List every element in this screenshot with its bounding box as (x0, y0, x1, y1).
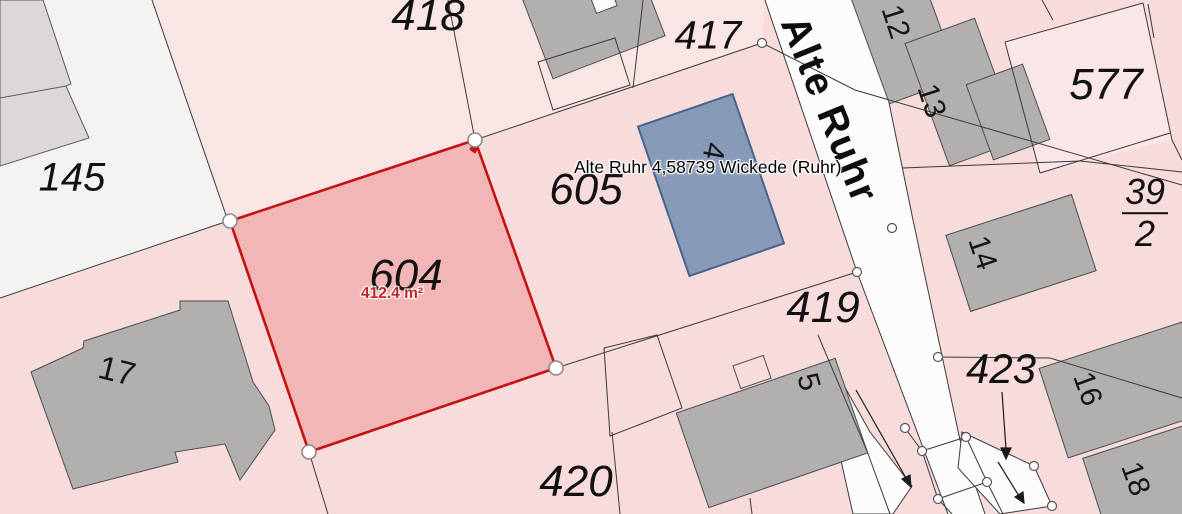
parcel-vertex-handle[interactable] (468, 133, 482, 147)
building-house-5 (676, 358, 867, 507)
cadastral-map-canvas[interactable]: 145 418 417 577 605 604 419 420 423 39 2… (0, 0, 1182, 514)
selected-building-blue[interactable] (638, 94, 784, 276)
map-vector-layer (0, 0, 1182, 514)
building-house-17 (31, 301, 275, 489)
building-house-14 (946, 195, 1096, 312)
parcel-vertex-handle[interactable] (302, 445, 316, 459)
parcel-vertex-handle[interactable] (223, 214, 237, 228)
parcel-vertex-handle[interactable] (549, 361, 563, 375)
